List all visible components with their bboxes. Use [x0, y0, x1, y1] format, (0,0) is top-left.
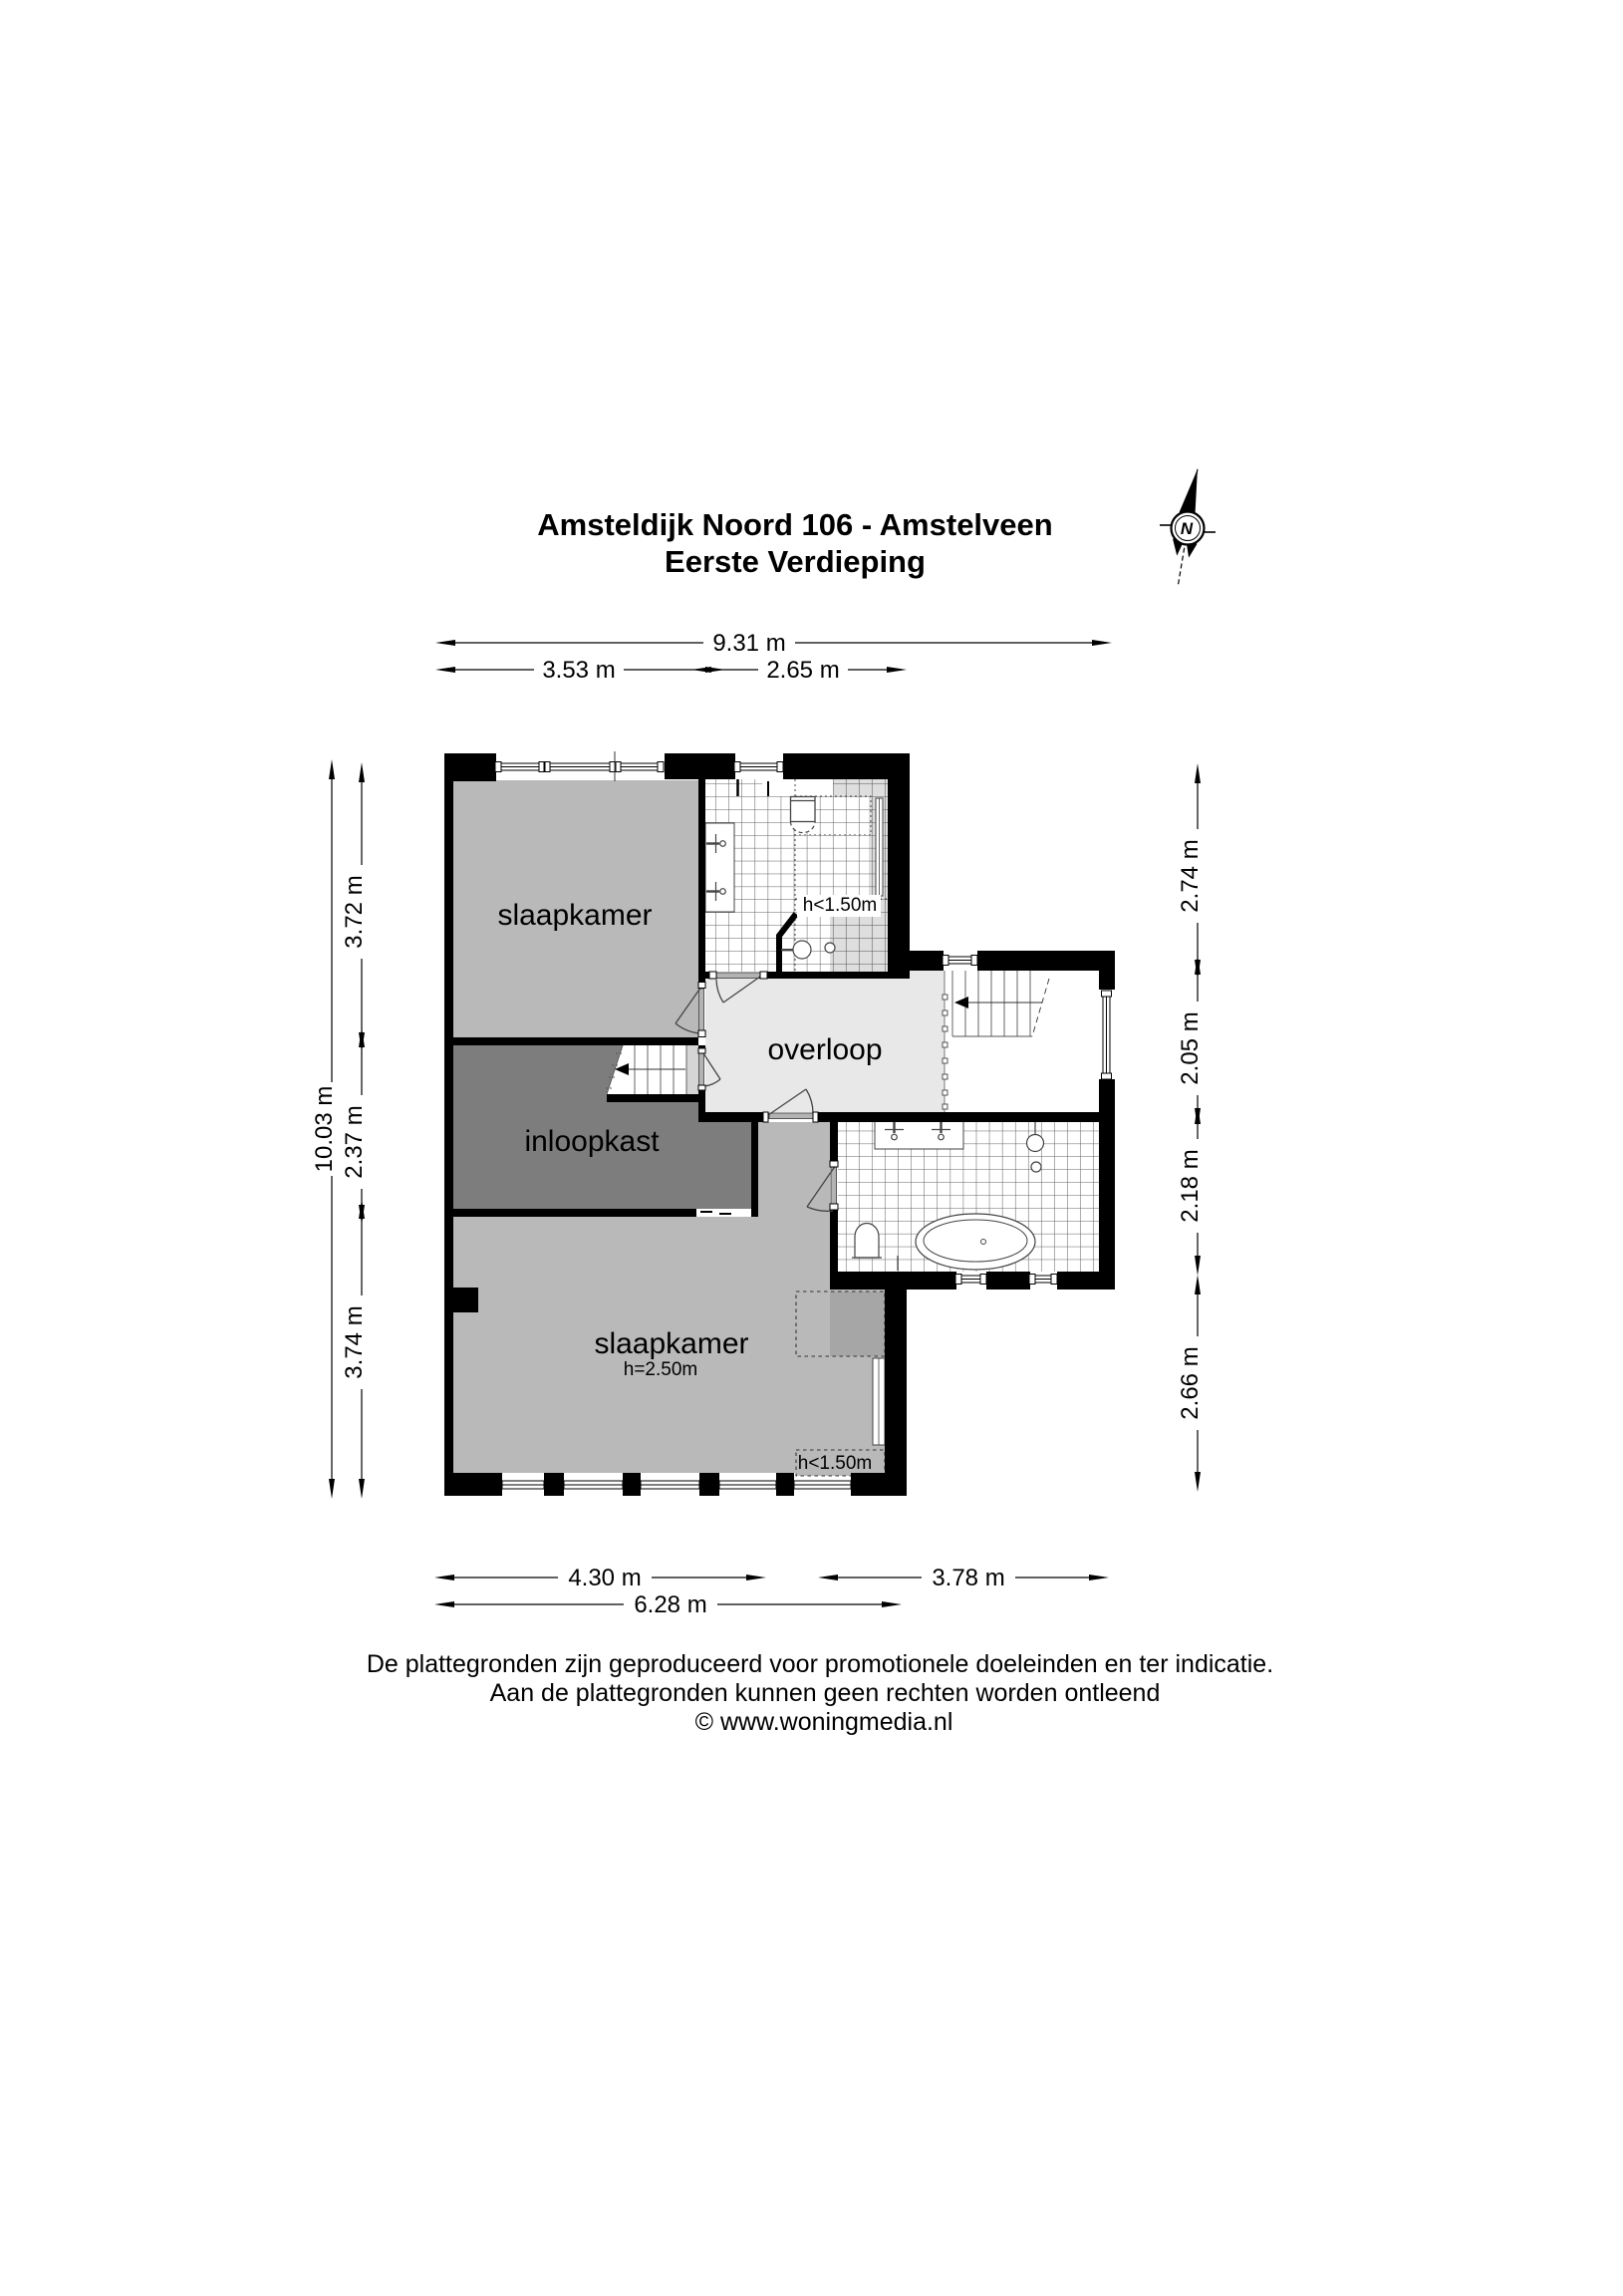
svg-text:De plattegronden zijn geproduc: De plattegronden zijn geproduceerd voor … [367, 1650, 1273, 1678]
svg-text:4.30 m: 4.30 m [568, 1565, 641, 1591]
svg-text:3.53 m: 3.53 m [542, 657, 615, 684]
svg-text:h<1.50m: h<1.50m [798, 1453, 872, 1474]
svg-text:2.74 m: 2.74 m [1177, 839, 1204, 912]
svg-text:Amsteldijk Noord 106 - Amstelv: Amsteldijk Noord 106 - Amstelveen [537, 507, 1052, 542]
svg-text:© www.woningmedia.nl: © www.woningmedia.nl [695, 1708, 953, 1736]
svg-text:Aan de plattegronden kunnen ge: Aan de plattegronden kunnen geen rechten… [490, 1679, 1161, 1707]
svg-text:6.28 m: 6.28 m [634, 1591, 706, 1618]
svg-text:h=2.50m: h=2.50m [624, 1359, 697, 1380]
svg-text:slaapkamer: slaapkamer [497, 899, 652, 932]
svg-text:h<1.50m: h<1.50m [803, 895, 877, 916]
svg-text:inloopkast: inloopkast [524, 1125, 660, 1158]
svg-text:2.65 m: 2.65 m [766, 657, 839, 684]
svg-text:10.03 m: 10.03 m [311, 1086, 338, 1173]
svg-text:9.31 m: 9.31 m [712, 630, 785, 657]
svg-text:2.05 m: 2.05 m [1177, 1011, 1204, 1084]
svg-text:2.66 m: 2.66 m [1177, 1346, 1204, 1419]
svg-text:3.72 m: 3.72 m [341, 875, 368, 948]
svg-text:2.18 m: 2.18 m [1177, 1149, 1204, 1222]
svg-text:N: N [1181, 519, 1194, 538]
svg-text:Eerste Verdieping: Eerste Verdieping [665, 544, 926, 579]
svg-text:overloop: overloop [767, 1033, 882, 1066]
svg-text:3.74 m: 3.74 m [341, 1305, 368, 1378]
svg-text:slaapkamer: slaapkamer [594, 1327, 748, 1360]
svg-text:2.37 m: 2.37 m [341, 1105, 368, 1178]
svg-text:3.78 m: 3.78 m [932, 1565, 1004, 1591]
